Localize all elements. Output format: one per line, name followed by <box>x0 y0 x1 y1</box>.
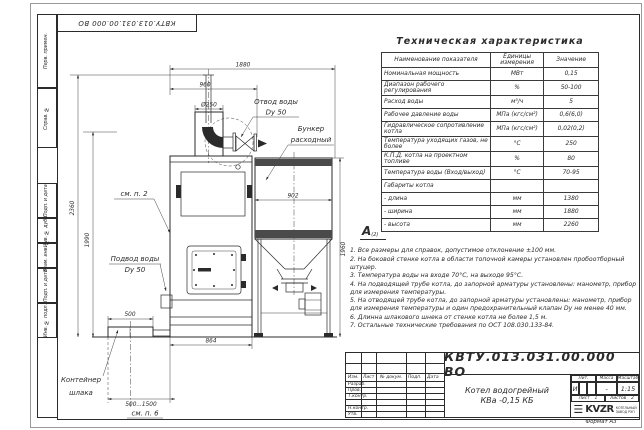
sheet-cell: Лист1 <box>571 395 605 402</box>
tb-col-podp: Подп. <box>408 375 422 380</box>
product-name-line2: КВа -0,15 КБ <box>480 396 533 406</box>
dim-864: 864 <box>205 339 216 345</box>
tb-line <box>346 411 444 412</box>
tb-row-nkontr: Н.контр. <box>348 406 368 411</box>
label-slag-container-2: шлака <box>69 389 93 397</box>
logo-bars-icon: ☰ <box>573 405 583 415</box>
tb-col-data: Дата <box>427 375 439 380</box>
vent-fitting <box>236 165 240 169</box>
param-unit: % <box>490 81 543 96</box>
tb-row-prov: Пров. <box>348 388 361 393</box>
param-name: К.П.Д. котла на проектном топливе <box>382 152 491 167</box>
tech-characteristics: Техническая характеристика Наименование … <box>381 36 599 232</box>
param-value: 1380 <box>544 193 599 206</box>
param-unit: % <box>490 152 543 167</box>
product-name: Котел водогрейный КВа -0,15 КБ <box>444 375 571 417</box>
label-outlet-water-2: Dy 50 <box>266 109 287 117</box>
tb-row-tkontr: Т.контр. <box>348 394 368 399</box>
param-name: Температура уходящих газов, не более <box>382 137 491 152</box>
param-value: 0,15 <box>544 68 599 81</box>
furnace-door <box>187 246 246 294</box>
callout-labels: Отвод воды Dy 50 Бункер расходный см. п.… <box>61 98 332 418</box>
tech-row: Номинальная мощностьМВт0,15 <box>382 68 599 81</box>
lit-header: Лит. <box>571 375 596 382</box>
param-unit: МПа (кгс/см²) <box>490 122 543 137</box>
param-value: 80 <box>544 152 599 167</box>
label-see-p6: см. п. 6 <box>131 410 159 418</box>
dim-1880: 1880 <box>236 63 251 69</box>
tech-row: - длинамм1380 <box>382 193 599 206</box>
logo-tag-line2: ЗАВОД РЭП <box>616 410 637 414</box>
format-label: Формат А3 <box>556 419 644 425</box>
tb-col-izm: Изм. <box>348 375 359 380</box>
dim-960: 960 <box>199 83 210 89</box>
sheets-cell: Листов2 <box>605 395 639 402</box>
param-unit <box>490 180 543 193</box>
tech-row: Температура уходящих газов, не более°С25… <box>382 137 599 152</box>
param-unit: °С <box>490 137 543 152</box>
tech-table: Наименование показателя Единицы измерени… <box>381 52 599 232</box>
scale-value: 1:15 <box>617 382 639 395</box>
frame-label: Перв. примен. <box>44 33 49 69</box>
param-value: 2260 <box>544 219 599 232</box>
tech-row: - ширинамм1880 <box>382 206 599 219</box>
param-unit: м³/ч <box>490 96 543 109</box>
mass-value: - <box>596 382 617 395</box>
drawing-sheet: Перв. примен. Справ. № Подп. и дата Инв.… <box>0 0 644 430</box>
param-value <box>544 180 599 193</box>
scale-header: Масштаб <box>617 375 639 382</box>
boiler-body <box>161 156 252 337</box>
dim-1990: 1990 <box>85 232 91 247</box>
tb-row-razrab: Разраб. <box>348 382 366 387</box>
param-unit: °С <box>490 167 543 180</box>
label-inlet-water-1: Подвод воды <box>111 255 160 263</box>
tb-col-docnum: № докум. <box>380 375 402 380</box>
frame-label: Подп. и дата <box>44 269 49 302</box>
label-outlet-water-1: Отвод воды <box>254 98 298 106</box>
label-inlet-water-2: Dy 50 <box>125 266 146 274</box>
doc-number: КВТУ.013.031.00.000 ВО <box>444 353 639 375</box>
param-unit: мм <box>490 193 543 206</box>
param-value: 250 <box>544 137 599 152</box>
tb-row-utv: Утв. <box>348 412 357 417</box>
view-letter: А <box>362 224 371 238</box>
param-name: Температура воды (Вход/выход) <box>382 167 491 180</box>
param-name: - длина <box>382 193 491 206</box>
frame-cell-vzam-inv: Взам. инв. № <box>37 243 57 268</box>
dim-902: 902 <box>287 194 298 200</box>
fuel-bunker <box>255 158 332 269</box>
sheets-value: 2 <box>631 396 634 401</box>
param-name: Габариты котла <box>382 180 491 193</box>
col-header: Наименование показателя <box>382 53 491 68</box>
sheet-label: Лист <box>579 396 590 401</box>
frame-cell-sprav-no: Справ. № <box>37 88 57 148</box>
frame-label: Взам. инв. № <box>44 239 49 272</box>
tech-row: Габариты котла <box>382 180 599 193</box>
param-name: - ширина <box>382 206 491 219</box>
param-name: Гидравлическое сопротивление котла <box>382 122 491 137</box>
tb-col-list: Лист <box>363 375 374 380</box>
lit-value: И <box>571 382 579 395</box>
note-line: 3. Температура воды на входе 70°С, на вы… <box>350 272 637 280</box>
label-bunker-1: Бункер <box>298 125 325 133</box>
frame-label: Справ. № <box>44 106 49 129</box>
param-unit: мм <box>490 206 543 219</box>
door-handle <box>198 268 211 272</box>
dim-1960: 1960 <box>341 241 347 256</box>
tb-line <box>346 399 444 400</box>
tech-table-header-row: Наименование показателя Единицы измерени… <box>382 53 599 68</box>
param-name: Диапазон рабочего регулирования <box>382 81 491 96</box>
view-sheet-ref: (2) <box>371 232 378 238</box>
flow-arrow <box>258 140 267 148</box>
param-name: - высота <box>382 219 491 232</box>
param-name: Расход воды <box>382 96 491 109</box>
frame-label: Подп. и дата <box>44 184 49 217</box>
param-unit: МВт <box>490 68 543 81</box>
tech-row: Расход водым³/ч5 <box>382 96 599 109</box>
param-name: Рабочее давление воды <box>382 109 491 122</box>
lit-cell-2 <box>579 382 587 395</box>
frame-cell-perv-primen: Перв. примен. <box>37 14 57 88</box>
mass-header: Масса <box>596 375 617 382</box>
boiler-assembly-drawing: 1880 960 Ø250 902 2360 1990 1960 500 864… <box>57 25 347 420</box>
dim-250: Ø250 <box>200 102 217 109</box>
param-value: 50-100 <box>544 81 599 96</box>
label-see-p2: см. п. 2 <box>120 190 148 198</box>
title-block: Изм. Лист № докум. Подп. Дата Разраб. Пр… <box>345 352 640 418</box>
tb-line <box>346 363 444 364</box>
fuel-feeder <box>272 269 321 315</box>
tech-table-title: Техническая характеристика <box>381 36 599 47</box>
dim-2360: 2360 <box>70 200 76 215</box>
param-value: 0,6(6,0) <box>544 109 599 122</box>
note-line: 6. Длинна шлакового шнека от стенке котл… <box>350 314 637 322</box>
product-name-line1: Котел водогрейный <box>465 386 549 396</box>
logo-tagline: КОТЕЛЬНЫЙ ЗАВОД РЭП <box>616 406 637 414</box>
feeder-motor <box>305 293 321 315</box>
tech-row: К.П.Д. котла на проектном топливе%80 <box>382 152 599 167</box>
note-line: 4. На подводящей трубе котла, до запорно… <box>350 281 637 297</box>
logo-text: KVZR <box>585 404 613 415</box>
frame-cell-podp-data-2: Подп. и дата <box>37 268 57 303</box>
sheets-label: Листов <box>610 396 626 401</box>
tech-row: Диапазон рабочего регулирования%50-100 <box>382 81 599 96</box>
frame-cell-inv-podl: Инв. № подл. <box>37 303 57 338</box>
param-value: 70-95 <box>544 167 599 180</box>
param-value: 1880 <box>544 206 599 219</box>
label-slag-container-1: Контейнер <box>61 376 102 384</box>
bunker-stand <box>254 239 333 337</box>
tech-row: Гидравлическое сопротивление котлаМПа (к… <box>382 122 599 137</box>
col-header: Единицы измерения <box>490 53 543 68</box>
label-bunker-2: расходный <box>290 136 332 144</box>
tech-row: Температура воды (Вход/выход)°С70-95 <box>382 167 599 180</box>
lit-cell-3 <box>587 382 596 395</box>
frame-cell-podp-data-1: Подп. и дата <box>37 183 57 218</box>
param-name: Номинальная мощность <box>382 68 491 81</box>
param-value: 0,02(0,2) <box>544 122 599 137</box>
param-unit: МПа (кгс/см²) <box>490 109 543 122</box>
frame-label: Инв. № подл. <box>44 304 49 337</box>
dim-500: 500 <box>124 312 135 318</box>
technical-notes: 1. Все размеры для справок, допустимое о… <box>350 247 637 331</box>
note-line: 7. Остальные технические требования по О… <box>350 322 637 330</box>
tech-row: Рабочее давление водыМПа (кгс/см²)0,6(6,… <box>382 109 599 122</box>
note-line: 5. На отводящей трубе котла, до запорной… <box>350 297 637 313</box>
param-unit: мм <box>490 219 543 232</box>
note-line: 1. Все размеры для справок, допустимое о… <box>350 247 637 255</box>
kvzr-logo: ☰ KVZR КОТЕЛЬНЫЙ ЗАВОД РЭП <box>571 402 639 417</box>
upper-door <box>176 172 252 216</box>
note-line: 2. На боковой стенке котла в области топ… <box>350 256 637 272</box>
dim-range: 500...1500 <box>125 402 157 408</box>
view-mark-A: А(2) <box>360 224 386 240</box>
tech-row: - высотамм2260 <box>382 219 599 232</box>
sheet-value: 1 <box>595 396 598 401</box>
col-header: Значение <box>544 53 599 68</box>
param-value: 5 <box>544 96 599 109</box>
